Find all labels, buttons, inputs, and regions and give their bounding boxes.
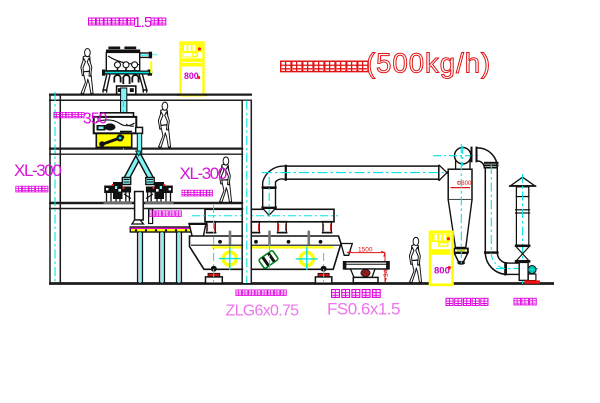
svg-text:XL-300: XL-300	[180, 164, 227, 183]
svg-text:Φ800: Φ800	[457, 181, 472, 187]
svg-text:800: 800	[184, 71, 199, 81]
svg-text:1500: 1500	[358, 247, 373, 254]
svg-text:(500kg/h): (500kg/h)	[366, 48, 491, 79]
svg-text:350: 350	[83, 111, 108, 128]
svg-text:ZLG6x0.75: ZLG6x0.75	[226, 303, 300, 320]
svg-text:800: 800	[434, 266, 450, 277]
svg-text:XL-300: XL-300	[14, 161, 61, 180]
svg-text:1.5: 1.5	[134, 15, 152, 31]
svg-text:FS0.6x1.5: FS0.6x1.5	[327, 300, 400, 319]
